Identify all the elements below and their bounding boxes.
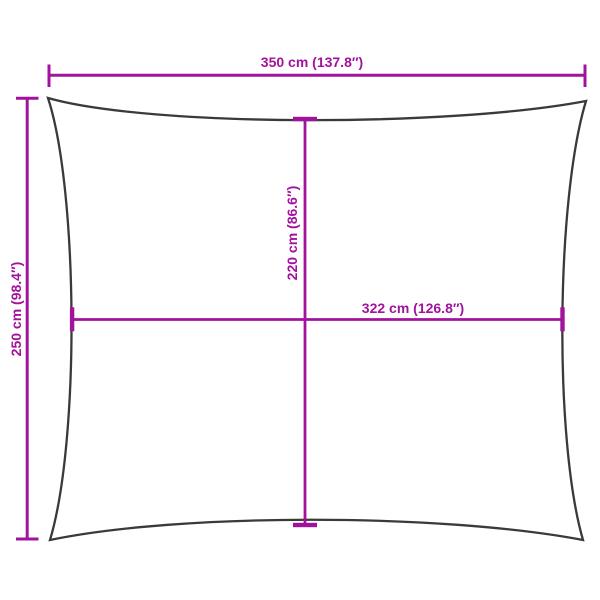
dimension-top-label: 350 cm (137.8″) bbox=[261, 54, 363, 70]
dimension-inner-width-label: 322 cm (126.8″) bbox=[362, 300, 464, 316]
dimension-inner-height-label: 220 cm (86.6″) bbox=[284, 186, 300, 281]
dimension-left-height: 250 cm (98.4″) bbox=[8, 98, 39, 539]
dimension-left-label: 250 cm (98.4″) bbox=[8, 262, 24, 357]
dimension-diagram: 350 cm (137.8″) 250 cm (98.4″) 220 cm (8… bbox=[0, 0, 600, 600]
dimension-inner-height: 220 cm (86.6″) bbox=[284, 117, 317, 527]
dimension-inner-vertical-top-tick bbox=[293, 117, 317, 121]
dimension-inner-horizontal-right-tick bbox=[560, 307, 564, 331]
dimension-top-width: 350 cm (137.8″) bbox=[49, 54, 585, 87]
diagram-canvas: 350 cm (137.8″) 250 cm (98.4″) 220 cm (8… bbox=[0, 0, 600, 600]
dimension-inner-horizontal-left-tick bbox=[70, 307, 74, 331]
dimension-inner-vertical-bottom-tick bbox=[293, 523, 317, 527]
dimension-inner-width: 322 cm (126.8″) bbox=[70, 300, 565, 331]
